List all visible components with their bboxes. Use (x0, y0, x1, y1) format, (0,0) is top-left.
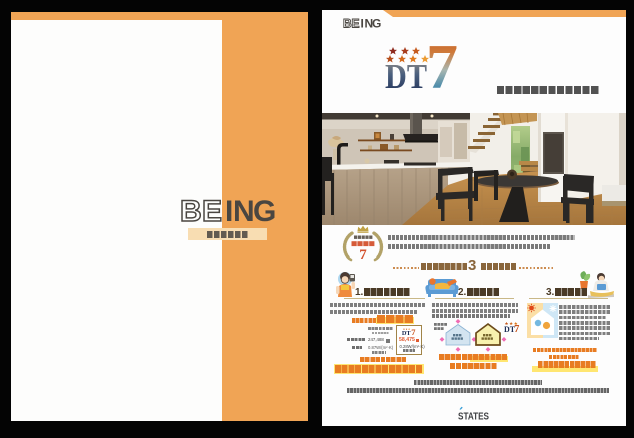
svg-text:DT: DT (385, 57, 427, 92)
svg-text:N: N (233, 195, 255, 227)
svg-text:G: G (372, 17, 381, 30)
svg-text:7: 7 (426, 40, 458, 92)
svg-text:E: E (202, 195, 222, 227)
svg-text:I: I (361, 17, 364, 30)
svg-text:B: B (180, 195, 202, 227)
svg-text:G: G (253, 195, 276, 227)
svg-text:7: 7 (411, 327, 416, 335)
svg-text:E: E (352, 17, 360, 30)
svg-text:7: 7 (359, 247, 367, 263)
svg-text:DT: DT (402, 330, 412, 335)
svg-text:7: 7 (514, 324, 519, 335)
svg-text:STATES: STATES (458, 412, 489, 423)
